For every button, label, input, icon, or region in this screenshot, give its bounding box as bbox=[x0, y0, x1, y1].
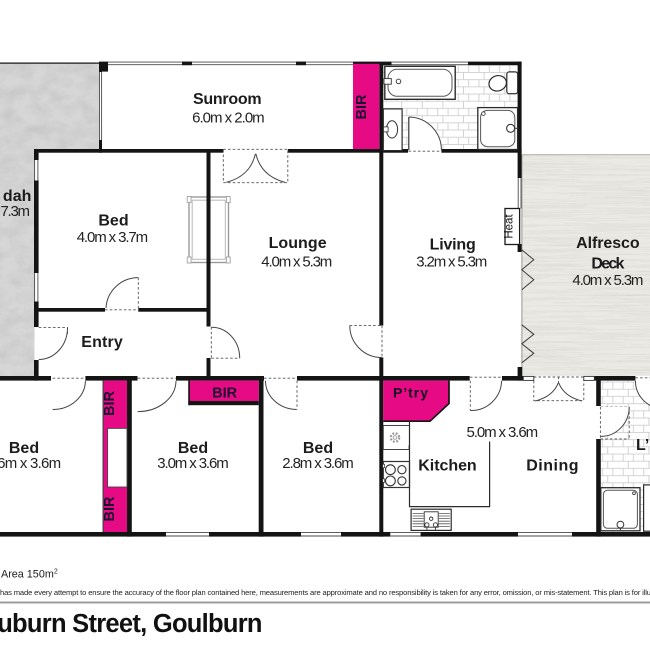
svg-text:7.3m: 7.3m bbox=[1, 203, 31, 220]
svg-text:Alfresco: Alfresco bbox=[576, 235, 640, 252]
svg-text:6.0m x 2.0m: 6.0m x 2.0m bbox=[192, 110, 265, 127]
svg-text:Entry: Entry bbox=[81, 334, 123, 351]
svg-text:BIR: BIR bbox=[212, 385, 238, 401]
svg-text:4.0m x 5.3m: 4.0m x 5.3m bbox=[572, 272, 643, 289]
svg-text:BIR: BIR bbox=[102, 496, 118, 522]
svg-text:P’try: P’try bbox=[393, 385, 428, 401]
svg-text:has made every attempt to ensu: has made every attempt to ensure the acc… bbox=[0, 588, 650, 597]
svg-text:Auburn Street, Goulburn: Auburn Street, Goulburn bbox=[0, 610, 263, 638]
svg-text:Area 150m2: Area 150m2 bbox=[1, 568, 58, 580]
svg-text:Kitchen: Kitchen bbox=[418, 458, 476, 475]
svg-text:L’dry: L’dry bbox=[636, 437, 650, 454]
svg-text:Dining: Dining bbox=[526, 458, 578, 475]
svg-text:3.6m x 3.6m: 3.6m x 3.6m bbox=[0, 455, 61, 472]
svg-text:3.2m x 5.3m: 3.2m x 5.3m bbox=[416, 254, 487, 271]
svg-text:Deck: Deck bbox=[591, 255, 624, 272]
svg-text:Lounge: Lounge bbox=[269, 235, 327, 252]
svg-text:BIR: BIR bbox=[354, 94, 370, 120]
svg-text:2.8m x 3.6m: 2.8m x 3.6m bbox=[282, 455, 353, 472]
svg-text:Bed: Bed bbox=[98, 213, 128, 230]
svg-text:5.0m x 3.6m: 5.0m x 3.6m bbox=[467, 424, 539, 441]
svg-text:Living: Living bbox=[430, 237, 476, 254]
svg-text:4.0m x 3.7m: 4.0m x 3.7m bbox=[77, 229, 148, 246]
svg-text:BIR: BIR bbox=[102, 390, 118, 416]
svg-text:3.0m x 3.6m: 3.0m x 3.6m bbox=[157, 455, 228, 472]
svg-text:Heat: Heat bbox=[503, 214, 515, 239]
svg-text:Sunroom: Sunroom bbox=[193, 91, 261, 108]
svg-text:4.0m x 5.3m: 4.0m x 5.3m bbox=[261, 254, 332, 271]
